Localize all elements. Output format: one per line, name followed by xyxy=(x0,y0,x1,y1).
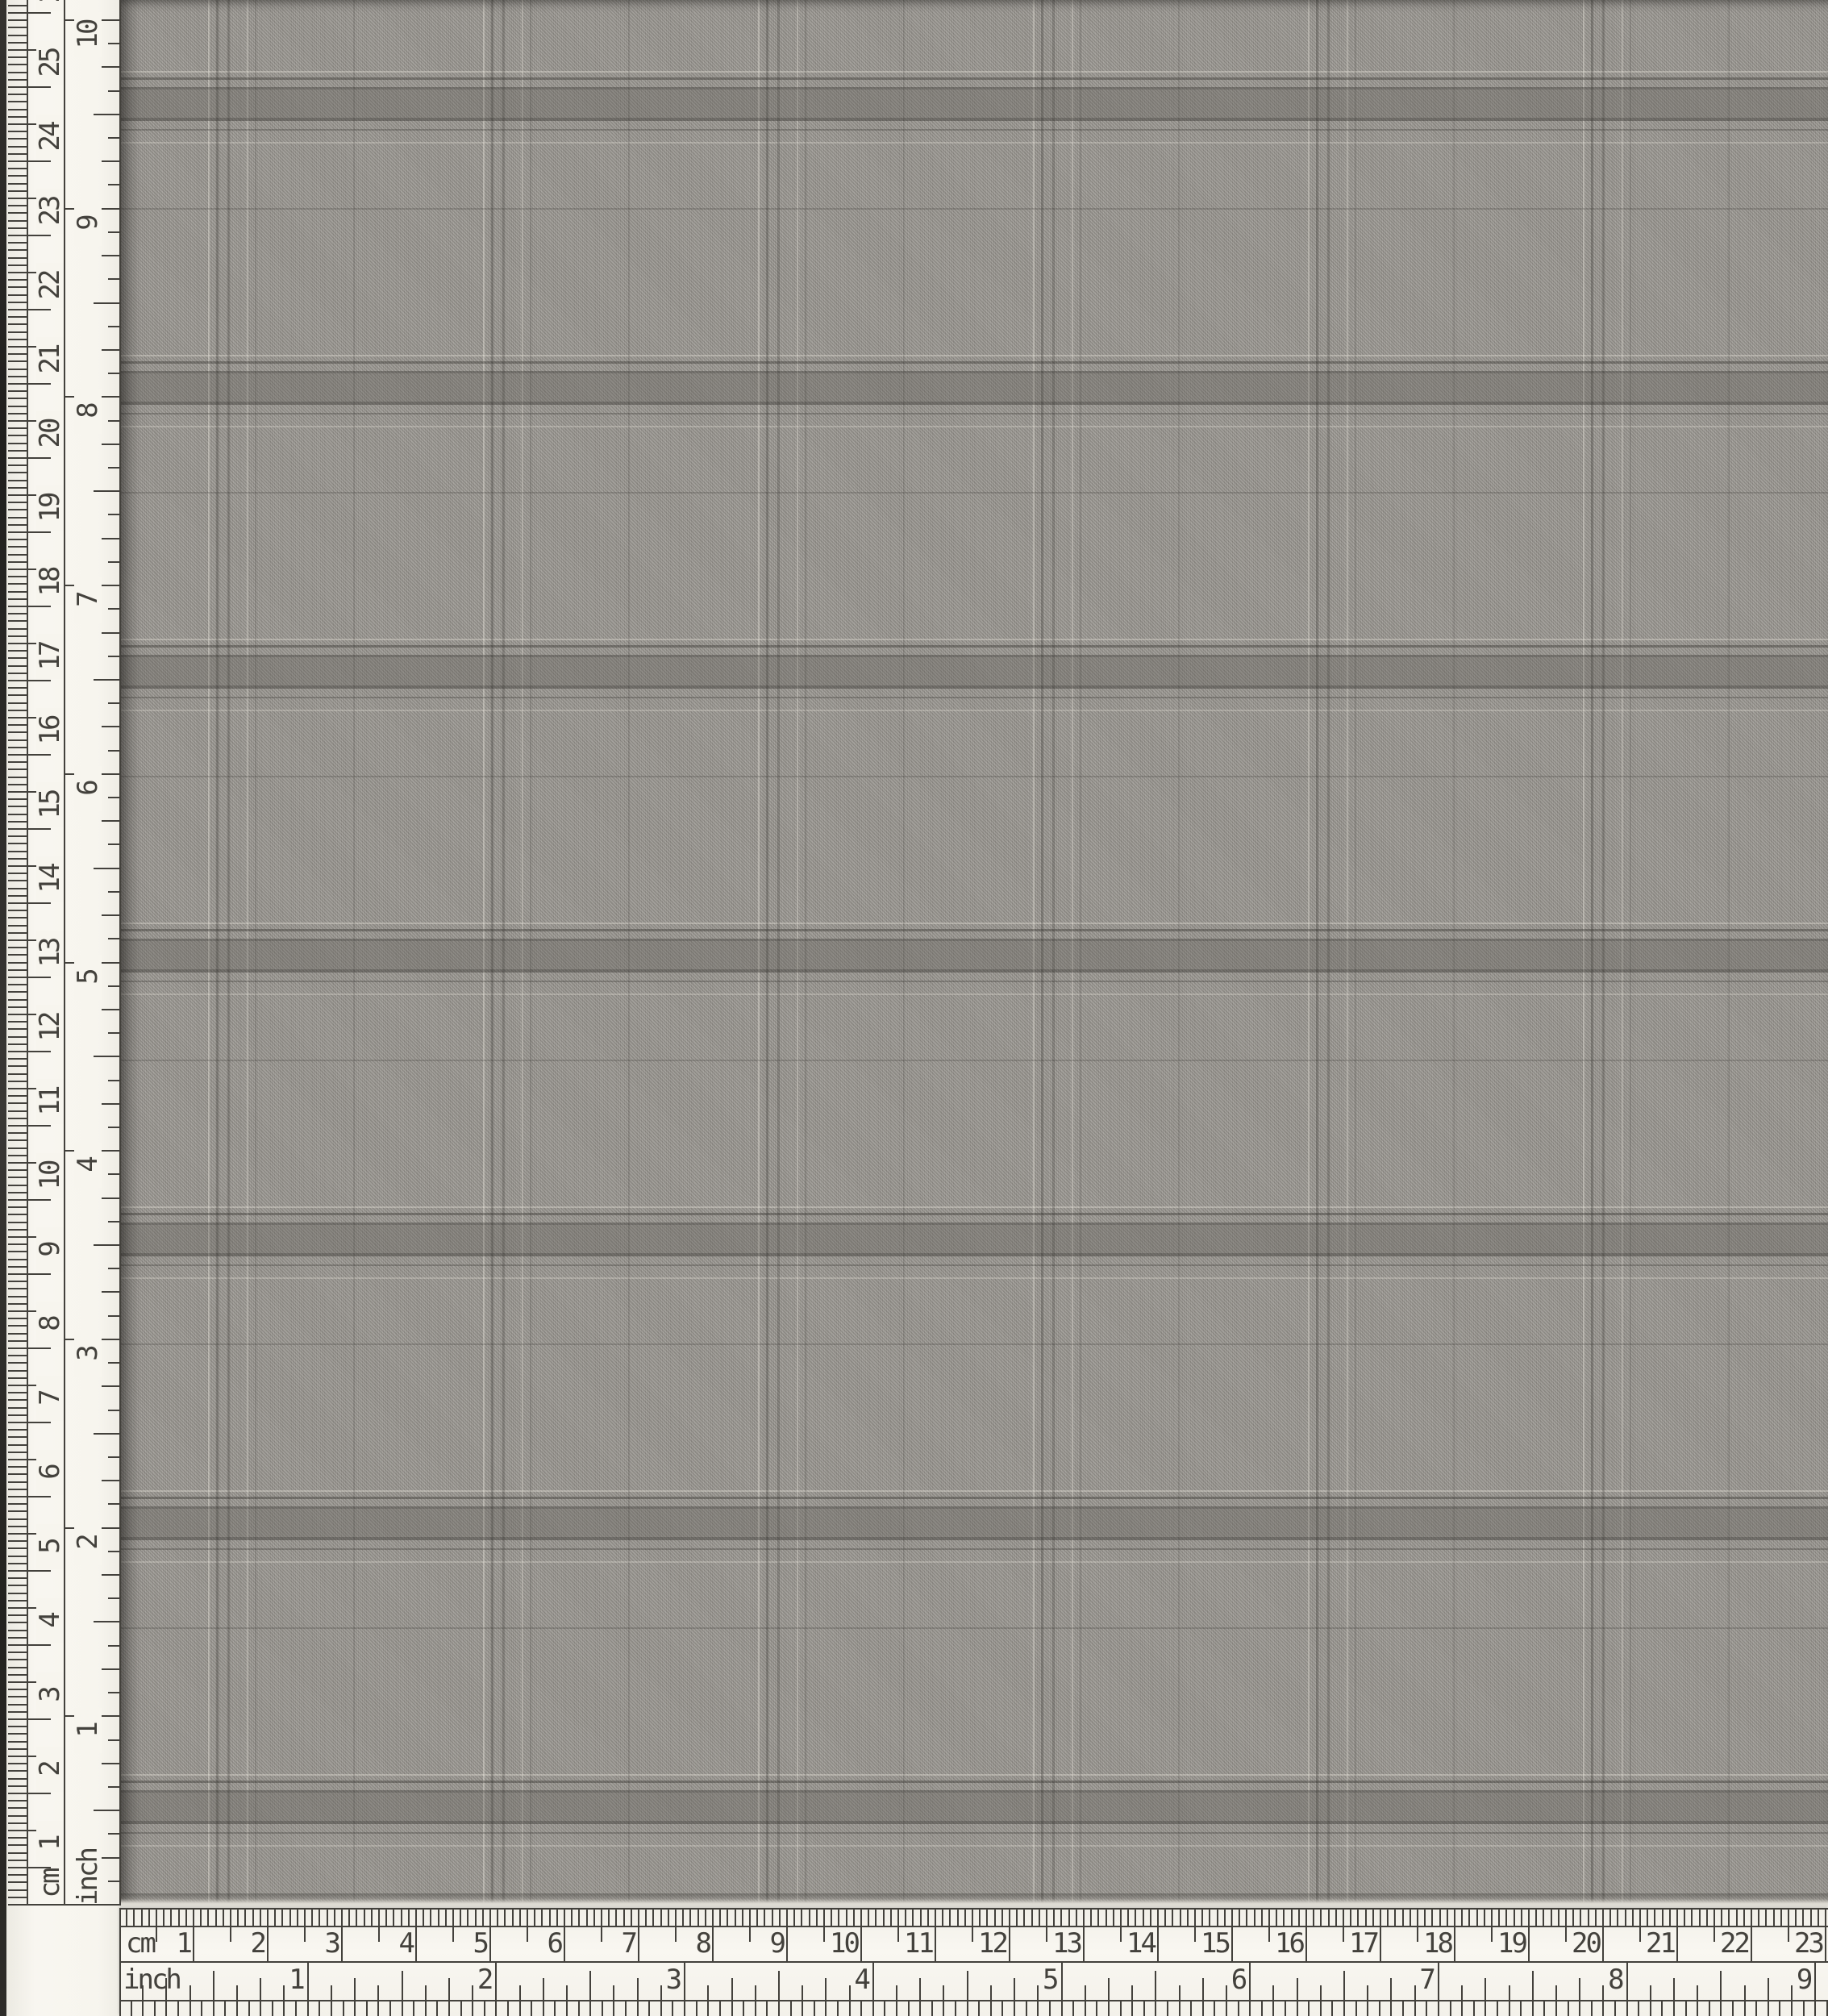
ruler-tick xyxy=(1744,1985,1746,2000)
ruler-tick xyxy=(27,1347,51,1349)
ruler-tick xyxy=(1528,1926,1530,1961)
ruler-tick xyxy=(8,264,27,266)
ruler-tick xyxy=(8,198,27,199)
ruler-tick xyxy=(1113,1910,1114,1926)
vertical-ruler-cm-number: 20 xyxy=(36,411,64,456)
ruler-tick xyxy=(8,687,27,689)
ruler-tick xyxy=(1009,1926,1010,1961)
ruler-tick xyxy=(8,932,27,934)
ruler-tick xyxy=(637,1978,639,2000)
ruler-tick xyxy=(8,947,27,948)
ruler-tick xyxy=(1543,2000,1545,2016)
horizontal-ruler-inch-number: 2 xyxy=(452,1965,491,1994)
ruler-tick xyxy=(8,1088,27,1089)
ruler-tick xyxy=(8,1377,27,1379)
ruler-tick xyxy=(1180,1910,1181,1926)
ruler-tick xyxy=(8,777,27,778)
ruler-tick xyxy=(8,302,27,303)
ruler-tick xyxy=(8,1229,27,1231)
ruler-tick xyxy=(8,12,27,14)
ruler-tick xyxy=(119,1908,1828,1910)
ruler-tick xyxy=(8,123,27,125)
ruler-tick xyxy=(689,1910,691,1926)
ruler-tick xyxy=(8,673,27,674)
ruler-tick xyxy=(8,1399,27,1401)
horizontal-ruler-cm-number: 19 xyxy=(1487,1929,1526,1958)
ruler-tick xyxy=(8,450,27,452)
ruler-tick xyxy=(94,1621,121,1622)
ruler-tick xyxy=(860,2000,862,2016)
ruler-tick xyxy=(1431,1910,1433,1926)
ruler-tick xyxy=(1049,2000,1051,2016)
ruler-tick xyxy=(102,1480,121,1481)
ruler-tick xyxy=(1602,1926,1604,1961)
ruler-tick xyxy=(1023,1910,1025,1926)
ruler-tick xyxy=(8,1748,27,1750)
ruler-tick xyxy=(986,1910,988,1926)
ruler-tick xyxy=(8,1459,27,1460)
ruler-tick xyxy=(8,1793,27,1794)
ruler-tick xyxy=(364,1910,365,1926)
ruler-tick xyxy=(1814,2000,1816,2016)
ruler-tick xyxy=(27,977,51,978)
ruler-tick xyxy=(1461,1985,1463,2000)
ruler-tick xyxy=(307,2000,309,2016)
ruler-tick xyxy=(131,2000,132,2016)
ruler-tick xyxy=(1773,1910,1775,1926)
ruler-tick xyxy=(8,42,27,44)
ruler-tick xyxy=(8,739,27,741)
ruler-tick xyxy=(816,1910,818,1926)
ruler-tick xyxy=(8,902,27,904)
horizontal-ruler-cm-number: 6 xyxy=(523,1929,561,1958)
ruler-tick xyxy=(8,1844,27,1846)
ruler-tick xyxy=(8,212,27,214)
ruler-tick xyxy=(1372,1910,1374,1926)
horizontal-ruler-cm-number: 5 xyxy=(448,1929,487,1958)
ruler-tick xyxy=(920,1910,922,1926)
ruler-tick xyxy=(8,1756,27,1757)
ruler-tick xyxy=(8,1347,27,1349)
ruler-tick xyxy=(846,1910,847,1926)
ruler-tick xyxy=(571,1910,573,1926)
ruler-tick xyxy=(8,1481,27,1483)
ruler-tick xyxy=(809,1910,810,1926)
ruler-tick xyxy=(201,2000,202,2016)
ruler-tick xyxy=(1484,1978,1486,2000)
ruler-tick xyxy=(1825,1910,1826,1926)
ruler-tick xyxy=(8,1800,27,1801)
ruler-tick xyxy=(1661,2000,1663,2016)
ruler-tick xyxy=(8,376,27,377)
ruler-tick xyxy=(1810,1910,1812,1926)
ruler-tick xyxy=(896,1985,897,2000)
ruler-tick xyxy=(8,1778,27,1780)
ruler-tick xyxy=(236,2000,238,2016)
vertical-ruler-inch-number: 1 xyxy=(74,1708,102,1753)
ruler-tick xyxy=(8,316,27,318)
ruler-tick xyxy=(8,1281,27,1282)
ruler-tick xyxy=(8,249,27,251)
ruler-tick xyxy=(8,650,27,652)
ruler-tick xyxy=(875,1910,877,1926)
ruler-tick xyxy=(8,1118,27,1119)
ruler-tick xyxy=(8,190,27,192)
ruler-tick xyxy=(8,1904,27,1906)
ruler-tick xyxy=(994,1910,996,1926)
ruler-tick xyxy=(8,27,27,28)
ruler-tick xyxy=(1697,2000,1698,2016)
ruler-tick xyxy=(8,1429,27,1431)
ruler-tick xyxy=(495,2000,497,2016)
ruler-tick xyxy=(8,242,27,244)
ruler-tick xyxy=(1172,1910,1173,1926)
ruler-tick xyxy=(1239,1910,1240,1926)
ruler-tick xyxy=(8,569,27,570)
ruler-tick xyxy=(8,546,27,548)
ruler-tick xyxy=(8,1503,27,1505)
ruler-tick xyxy=(8,1807,27,1809)
ruler-tick xyxy=(8,1874,27,1876)
ruler-tick xyxy=(1179,1985,1180,2000)
ruler-tick xyxy=(1108,2000,1110,2016)
ruler-tick xyxy=(8,279,27,281)
horizontal-ruler-inch-number: 4 xyxy=(830,1965,868,1994)
ruler-tick xyxy=(1768,2000,1769,2016)
ruler-tick xyxy=(1728,1910,1730,1926)
horizontal-ruler-cm-number: 17 xyxy=(1339,1929,1377,1958)
ruler-tick xyxy=(8,1696,27,1697)
ruler-tick xyxy=(8,1095,27,1097)
horizontal-ruler-cm-number: 1 xyxy=(152,1929,190,1958)
ruler-tick xyxy=(8,1726,27,1727)
ruler-tick xyxy=(1061,2000,1063,2016)
ruler-tick xyxy=(27,309,51,310)
ruler-tick xyxy=(8,353,27,355)
ruler-tick xyxy=(8,1296,27,1297)
ruler-tick xyxy=(8,494,27,496)
ruler-tick xyxy=(8,1681,27,1683)
ruler-tick xyxy=(177,2000,179,2016)
ruler-tick xyxy=(224,2000,226,2016)
ruler-tick xyxy=(1157,1910,1159,1926)
ruler-tick xyxy=(8,1102,27,1104)
ruler-tick xyxy=(8,323,27,325)
ruler-tick xyxy=(1039,1910,1040,1926)
ruler-tick xyxy=(8,1081,27,1082)
ruler-tick xyxy=(8,1192,27,1193)
ruler-tick xyxy=(8,1496,27,1497)
ruler-tick xyxy=(1602,2000,1604,2016)
ruler-tick xyxy=(304,1910,306,1926)
ruler-tick xyxy=(1447,1910,1448,1926)
ruler-tick xyxy=(8,1385,27,1386)
ruler-tick xyxy=(8,1051,27,1052)
ruler-tick xyxy=(8,1414,27,1416)
ruler-tick xyxy=(868,1910,869,1926)
ruler-tick xyxy=(1283,1910,1285,1926)
ruler-tick xyxy=(8,1006,27,1008)
ruler-tick xyxy=(8,798,27,800)
ruler-tick xyxy=(8,1340,27,1342)
ruler-tick xyxy=(707,2000,709,2016)
ruler-tick xyxy=(8,502,27,503)
ruler-tick xyxy=(919,1978,921,2000)
horizontal-ruler-inch-number: 8 xyxy=(1584,1965,1622,1994)
ruler-tick xyxy=(912,1910,914,1926)
ruler-tick xyxy=(377,1985,379,2000)
ruler-tick xyxy=(8,1556,27,1557)
ruler-tick xyxy=(8,56,27,58)
ruler-tick xyxy=(436,2000,438,2016)
ruler-tick xyxy=(1614,2000,1616,2016)
ruler-tick xyxy=(267,1910,269,1926)
ruler-tick xyxy=(1001,1910,1003,1926)
ruler-tick xyxy=(8,1614,27,1616)
ruler-tick xyxy=(1439,1910,1441,1926)
ruler-tick xyxy=(1476,1910,1478,1926)
ruler-tick xyxy=(8,583,27,585)
ruler-tick xyxy=(8,205,27,206)
ruler-tick xyxy=(8,49,27,51)
ruler-tick xyxy=(8,1236,27,1238)
ruler-tick xyxy=(402,2000,403,2016)
ruler-tick xyxy=(755,1985,756,2000)
ruler-tick xyxy=(564,1910,565,1926)
ruler-tick xyxy=(8,1125,27,1127)
ruler-tick xyxy=(8,1860,27,1861)
ruler-tick xyxy=(578,1910,580,1926)
ruler-tick xyxy=(438,1910,439,1926)
vertical-ruler-inch-number: 9 xyxy=(74,201,102,246)
ruler-tick xyxy=(637,2000,639,2016)
ruler-tick xyxy=(8,487,27,489)
ruler-tick xyxy=(341,1926,343,1961)
ruler-tick xyxy=(8,1674,27,1676)
vertical-ruler-inch-number: 4 xyxy=(74,1143,102,1188)
ruler-tick xyxy=(423,1910,424,1926)
ruler-tick xyxy=(8,1273,27,1275)
ruler-tick xyxy=(1390,2000,1392,2016)
ruler-tick xyxy=(772,1910,773,1926)
ruler-tick xyxy=(102,1668,121,1670)
ruler-tick xyxy=(1061,1961,1063,2000)
ruler-tick xyxy=(425,1985,427,2000)
ruler-tick xyxy=(8,1021,27,1023)
ruler-tick xyxy=(1673,1978,1675,2000)
ruler-tick xyxy=(1579,1978,1580,2000)
ruler-tick xyxy=(8,858,27,860)
ruler-tick xyxy=(8,257,27,259)
ruler-tick xyxy=(460,1910,461,1926)
ruler-tick xyxy=(1751,1910,1752,1926)
ruler-tick xyxy=(8,1058,27,1060)
ruler-tick xyxy=(1238,2000,1239,2016)
ruler-tick xyxy=(1498,1910,1500,1926)
ruler-tick xyxy=(8,814,27,815)
ruler-tick xyxy=(27,531,51,533)
ruler-tick xyxy=(1514,1910,1515,1926)
ruler-tick xyxy=(27,457,51,459)
ruler-tick xyxy=(8,413,27,414)
ruler-tick xyxy=(1014,1978,1015,2000)
ruler-tick xyxy=(119,2000,1828,2001)
ruler-tick xyxy=(1226,2000,1227,2016)
ruler-tick xyxy=(1394,1910,1396,1926)
ruler-tick xyxy=(1297,2000,1298,2016)
ruler-tick xyxy=(1814,1961,1816,2000)
ruler-tick xyxy=(8,1148,27,1149)
ruler-tick xyxy=(931,2000,933,2016)
horizontal-ruler-inch-number: 3 xyxy=(641,1965,680,1994)
ruler-tick xyxy=(1461,2000,1463,2016)
ruler-tick xyxy=(8,1355,27,1356)
ruler-tick xyxy=(531,2000,532,2016)
horizontal-ruler-inch-number: 6 xyxy=(1206,1965,1245,1994)
ruler-tick xyxy=(8,1155,27,1156)
ruler-tick xyxy=(1343,1971,1345,2000)
ruler-tick xyxy=(1625,1910,1626,1926)
ruler-tick xyxy=(8,620,27,622)
ruler-tick xyxy=(1484,1910,1485,1926)
ruler-tick xyxy=(8,991,27,993)
ruler-tick xyxy=(8,1318,27,1319)
ruler-tick xyxy=(281,1910,283,1926)
ruler-tick xyxy=(1491,1910,1493,1926)
ruler-tick xyxy=(8,606,27,607)
ruler-tick xyxy=(967,1971,968,2000)
ruler-tick xyxy=(1580,1910,1581,1926)
ruler-tick xyxy=(248,2000,250,2016)
ruler-tick xyxy=(1106,1910,1107,1926)
ruler-tick xyxy=(8,1422,27,1423)
ruler-tick xyxy=(8,235,27,236)
ruler-tick xyxy=(707,1985,709,2000)
ruler-tick xyxy=(8,635,27,637)
ruler-tick xyxy=(148,1910,150,1926)
ruler-tick xyxy=(504,1910,506,1926)
ruler-tick xyxy=(94,302,121,304)
ruler-tick xyxy=(27,1125,51,1127)
vertical-ruler-cm-number: 18 xyxy=(36,560,64,605)
ruler-tick xyxy=(1638,2000,1639,2016)
ruler-tick xyxy=(1743,1910,1745,1926)
ruler-tick xyxy=(543,2000,544,2016)
ruler-tick xyxy=(1736,1910,1738,1926)
ruler-tick xyxy=(8,1185,27,1186)
ruler-tick xyxy=(327,1910,328,1926)
ruler-tick xyxy=(401,1910,402,1926)
ruler-tick xyxy=(8,86,27,88)
ruler-tick xyxy=(1803,2000,1805,2016)
ruler-tick xyxy=(8,1733,27,1735)
ruler-tick xyxy=(415,1910,417,1926)
ruler-tick xyxy=(990,1985,992,2000)
ruler-tick xyxy=(1135,1910,1136,1926)
vertical-ruler-cm-number: 25 xyxy=(36,40,64,85)
ruler-tick xyxy=(8,835,27,837)
ruler-tick xyxy=(8,531,27,533)
ruler-tick xyxy=(237,1910,239,1926)
ruler-tick xyxy=(825,2000,827,2016)
ruler-tick xyxy=(8,272,27,273)
ruler-tick xyxy=(8,702,27,704)
ruler-tick xyxy=(1424,1910,1426,1926)
ruler-tick xyxy=(8,969,27,971)
vertical-ruler-cm-number: 22 xyxy=(36,263,64,308)
vertical-ruler-inch-label: inch xyxy=(74,1833,102,1922)
ruler-tick xyxy=(27,902,51,904)
ruler-tick xyxy=(1072,2000,1074,2016)
ruler-tick xyxy=(8,665,27,667)
horizontal-ruler-cm-number: 9 xyxy=(745,1929,784,1958)
ruler-tick xyxy=(8,1303,27,1305)
ruler-tick xyxy=(608,1910,610,1926)
ruler-tick xyxy=(8,480,27,481)
ruler-tick xyxy=(8,339,27,340)
ruler-tick xyxy=(527,1910,528,1926)
ruler-tick xyxy=(838,1910,839,1926)
ruler-tick xyxy=(1426,2000,1427,2016)
ruler-tick xyxy=(1473,2000,1475,2016)
ruler-tick xyxy=(8,420,27,422)
ruler-tick xyxy=(334,1910,335,1926)
ruler-tick xyxy=(8,828,27,830)
ruler-tick xyxy=(27,1422,51,1423)
ruler-tick xyxy=(786,1926,788,1961)
ruler-tick xyxy=(743,2000,744,2016)
horizontal-ruler-cm-number: 4 xyxy=(374,1929,413,1958)
ruler-tick xyxy=(8,331,27,333)
ruler-tick xyxy=(1528,1910,1530,1926)
vertical-ruler-cm-number: 13 xyxy=(36,931,64,976)
ruler-tick xyxy=(696,2000,697,2016)
ruler-tick xyxy=(1551,1910,1552,1926)
ruler-tick xyxy=(331,2000,332,2016)
ruler-tick xyxy=(102,538,121,539)
ruler-tick xyxy=(566,2000,568,2016)
ruler-tick xyxy=(341,1910,343,1926)
ruler-tick xyxy=(1108,1978,1110,2000)
ruler-tick xyxy=(8,768,27,770)
ruler-tick xyxy=(27,1051,51,1052)
vertical-ruler-inch-number: 5 xyxy=(74,955,102,1000)
ruler-tick xyxy=(586,1910,588,1926)
ruler-tick xyxy=(27,86,51,88)
ruler-tick xyxy=(94,1810,121,1811)
ruler-tick xyxy=(8,309,27,310)
ruler-tick xyxy=(8,443,27,444)
horizontal-ruler-cm-number: 3 xyxy=(300,1929,339,1958)
ruler-tick xyxy=(1709,2000,1710,2016)
ruler-tick xyxy=(615,1910,617,1926)
ruler-tick xyxy=(1662,1910,1664,1926)
ruler-tick xyxy=(1246,1910,1247,1926)
ruler-tick xyxy=(8,346,27,348)
ruler-tick xyxy=(790,2000,792,2016)
ruler-tick xyxy=(778,1971,780,2000)
ruler-tick xyxy=(8,1577,27,1579)
ruler-tick xyxy=(1802,1910,1804,1926)
ruler-tick xyxy=(142,2000,144,2016)
ruler-tick xyxy=(1509,1985,1510,2000)
ruler-tick xyxy=(413,2000,414,2016)
ruler-tick xyxy=(163,1910,164,1926)
ruler-tick xyxy=(719,1910,721,1926)
ruler-tick xyxy=(1669,1910,1671,1926)
ruler-tick xyxy=(8,539,27,540)
ruler-tick xyxy=(749,1910,751,1926)
